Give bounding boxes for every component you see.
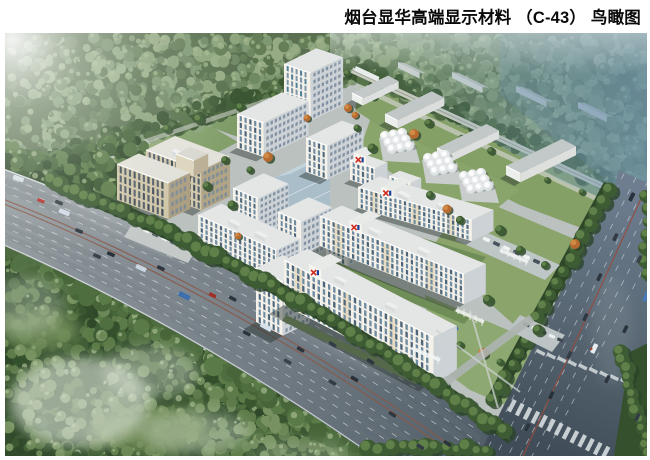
svg-text:烟台显华高端显示材料 （C-43） 鸟瞰图: 烟台显华高端显示材料 （C-43） 鸟瞰图 <box>344 7 641 27</box>
